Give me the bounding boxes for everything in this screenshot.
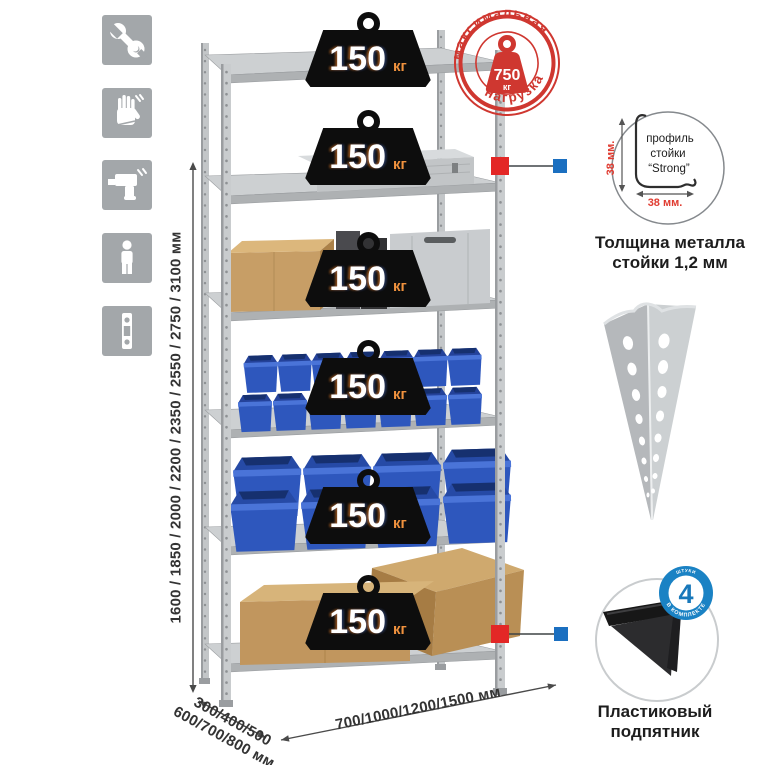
shelf2-load-badge: 150кг (304, 110, 432, 185)
shelf3-load-badge: 150кг (304, 232, 432, 307)
foot-caption: Пластиковый подпятник (545, 702, 765, 742)
profile-label-1: профиль (646, 133, 694, 145)
foot-caption-line2: подпятник (545, 722, 765, 742)
blue-marker-square (553, 159, 567, 173)
load-unit: кг (393, 621, 407, 638)
load-unit: кг (393, 515, 407, 532)
profile-dim-vertical: 38 мм. (606, 141, 617, 176)
load-unit: кг (393, 278, 407, 295)
profile-label-2: стойки (650, 148, 685, 160)
max-load-stamp: максимальная нагрузка 750 кг (448, 4, 566, 122)
red-marker-square (491, 625, 509, 643)
count-badge: 4 штуки в комплекте (659, 566, 713, 620)
red-marker-square (491, 157, 509, 175)
profile-dim-horizontal: 38 мм. (648, 197, 683, 209)
blue-marker-square (554, 627, 568, 641)
count-value: 4 (678, 579, 693, 609)
load-value: 150 (329, 370, 386, 404)
stamp-weight-unit: кг (503, 82, 512, 92)
shelf5-load-badge: 150кг (304, 469, 432, 544)
profile-caption: Толщина металла стойки 1,2 мм (560, 233, 765, 273)
load-value: 150 (329, 140, 386, 174)
load-unit: кг (393, 156, 407, 173)
shelf4-load-badge: 150кг (304, 340, 432, 415)
height-dimension-label: 1600 / 1850 / 2000 / 2200 / 2350 / 2550 … (168, 158, 185, 698)
load-value: 150 (329, 499, 386, 533)
post-profile-detail: 38 мм. 38 мм. профиль стойки “Strong” (606, 106, 734, 234)
height-dimension-line (189, 162, 196, 693)
shelf6-load-badge: 150кг (304, 575, 432, 650)
load-value: 150 (329, 42, 386, 76)
load-value: 150 (329, 262, 386, 296)
stamp-weight-icon: 750 кг (486, 38, 528, 94)
profile-caption-line2: стойки 1,2 мм (560, 253, 765, 273)
profile-label-3: “Strong” (648, 163, 690, 175)
load-unit: кг (393, 386, 407, 403)
load-value: 150 (329, 605, 386, 639)
profile-caption-line1: Толщина металла (560, 233, 765, 253)
profile-callout-connector (491, 157, 567, 175)
angle-post-image (590, 295, 740, 530)
foot-caption-line1: Пластиковый (545, 702, 765, 722)
foot-callout-connector (491, 625, 568, 643)
plastic-foot-detail: 4 штуки в комплекте (595, 560, 745, 710)
load-unit: кг (393, 58, 407, 75)
shelf1-load-badge: 150кг (304, 12, 432, 87)
product-infographic: 150кг 150кг 150кг 150кг 150кг 150кг макс… (0, 0, 765, 765)
